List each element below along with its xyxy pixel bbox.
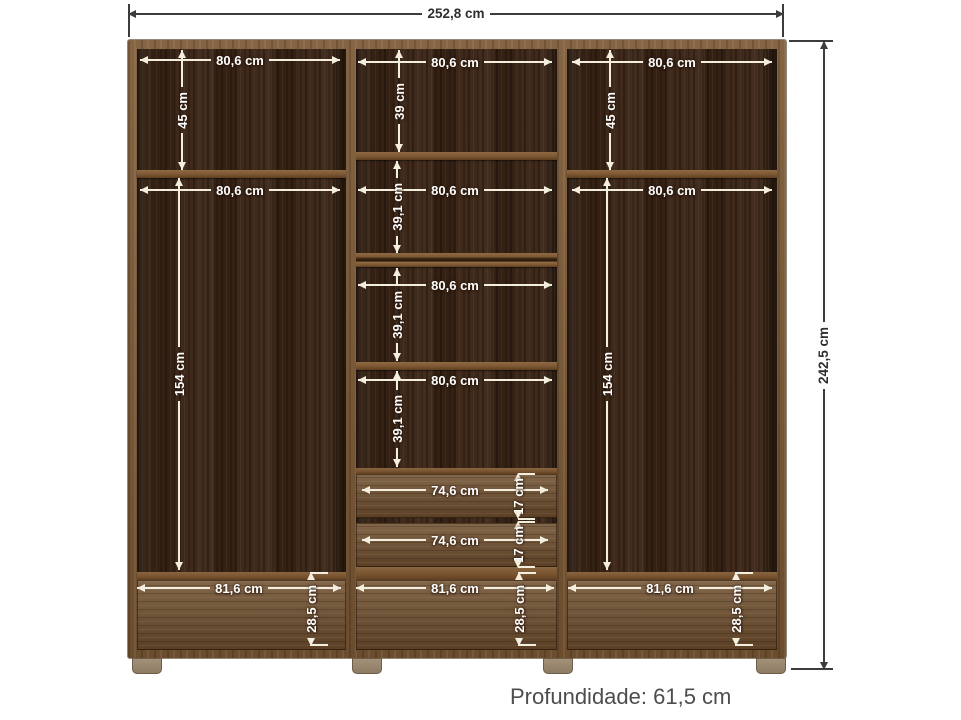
left-top-shelf — [137, 170, 346, 178]
dim-middle-c1-height: 39 cm — [392, 50, 406, 152]
extension-line — [789, 40, 833, 42]
dim-overall-height-label: 242,5 cm — [817, 322, 831, 389]
extension-line — [791, 668, 833, 670]
dim-middle-drawer2-height: 17 cm — [511, 521, 525, 568]
left-section-panel — [137, 49, 346, 650]
extension-line — [782, 4, 784, 37]
dim-middle-drawer1-height: 17 cm — [511, 473, 525, 519]
foot — [352, 658, 382, 674]
dimension-diagram: 252,8 cm 242,5 cm 80,6 cm 45 cm 80,6 cm … — [0, 0, 961, 720]
dim-middle-c2-width: 80,6 cm — [358, 183, 552, 197]
dim-middle-c3-width: 80,6 cm — [358, 278, 552, 292]
foot — [132, 658, 162, 674]
dim-right-top-width: 80,6 cm — [572, 55, 772, 69]
dim-right-top-height: 45 cm — [603, 50, 617, 170]
foot — [756, 658, 786, 674]
dim-right-base-height: 28,5 cm — [729, 572, 743, 646]
dim-middle-c2-height: 39,1 cm — [390, 161, 404, 253]
dim-middle-c4-width: 80,6 cm — [358, 373, 552, 387]
middle-shelf-3 — [356, 362, 557, 370]
dim-middle-c1-width: 80,6 cm — [358, 55, 552, 69]
dim-left-base-height: 28,5 cm — [304, 572, 318, 646]
foot — [543, 658, 573, 674]
dim-middle-c3-height: 39,1 cm — [390, 268, 404, 361]
dim-overall-width-label: 252,8 cm — [422, 7, 489, 21]
middle-shelf-1 — [356, 152, 557, 160]
dim-left-hang-height: 154 cm — [172, 178, 186, 570]
dim-left-top-height: 45 cm — [175, 50, 189, 170]
dim-left-mid-width: 80,6 cm — [140, 183, 340, 197]
dim-middle-c4-height: 39,1 cm — [390, 371, 404, 467]
dim-left-top-width: 80,6 cm — [140, 53, 340, 67]
wardrobe-front-view — [128, 40, 786, 672]
middle-shelf-2-double — [356, 253, 557, 267]
right-section-panel — [567, 49, 777, 650]
right-top-shelf — [567, 170, 777, 178]
dim-overall-height: 242,5 cm — [817, 41, 831, 670]
dim-overall-width: 252,8 cm — [128, 7, 784, 21]
depth-caption: Profundidade: 61,5 cm — [510, 684, 731, 710]
dim-right-hang-height: 154 cm — [600, 178, 614, 570]
extension-line — [128, 4, 130, 37]
dim-middle-base-height: 28,5 cm — [512, 572, 526, 646]
